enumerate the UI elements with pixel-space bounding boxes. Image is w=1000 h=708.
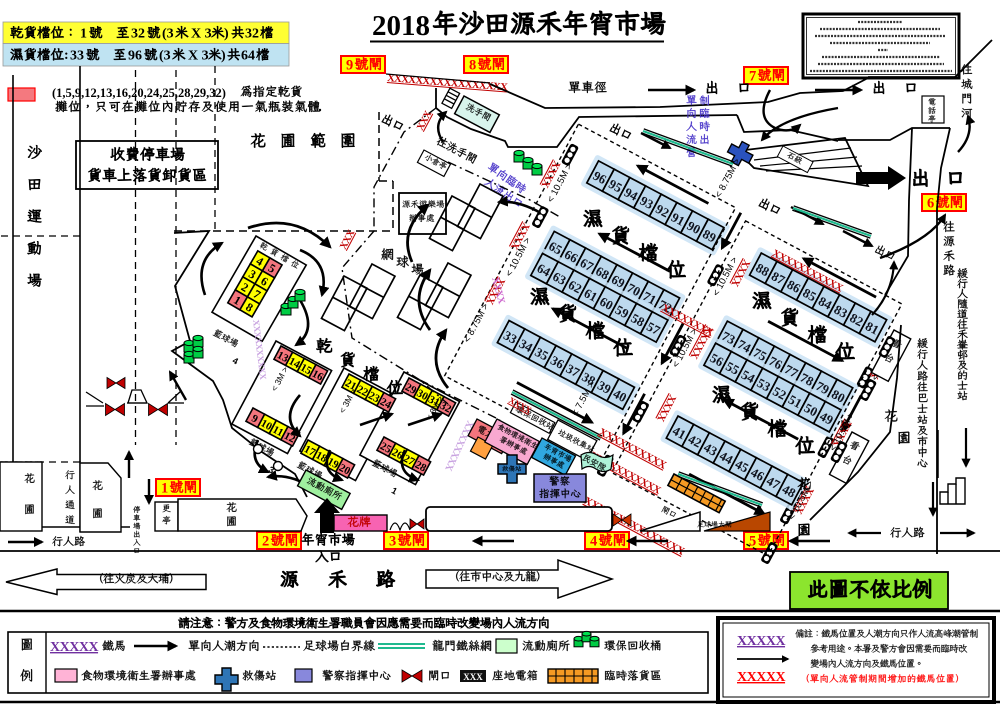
svg-text:): ) — [224, 27, 229, 42]
svg-text:6: 6 — [927, 196, 934, 212]
svg-text:(3: (3 — [162, 27, 174, 42]
svg-text:33: 33 — [70, 49, 84, 64]
svg-text:X 3: X 3 — [191, 27, 212, 42]
svg-text:X 3: X 3 — [188, 49, 209, 64]
svg-text:7: 7 — [749, 69, 756, 85]
svg-text:2018: 2018 — [372, 10, 430, 42]
svg-text:8: 8 — [469, 58, 476, 74]
svg-text:XXXXX: XXXXX — [737, 670, 785, 685]
svg-text:XXX: XXX — [463, 672, 483, 682]
svg-text:2: 2 — [262, 534, 269, 550]
svg-text:9: 9 — [346, 58, 353, 74]
svg-text:1: 1 — [80, 27, 87, 42]
svg-text:3: 3 — [389, 534, 396, 550]
svg-text:96: 96 — [128, 49, 142, 64]
svg-text:XXXXX: XXXXX — [50, 640, 98, 655]
svg-text:64: 64 — [241, 49, 255, 64]
svg-text:XXXXX: XXXXX — [737, 634, 785, 649]
svg-text:32: 32 — [131, 27, 145, 42]
svg-text:): ) — [221, 49, 226, 64]
svg-text:5: 5 — [749, 534, 756, 550]
svg-text:32: 32 — [245, 27, 259, 42]
svg-text:(1,5,9,12,13,16,20,24,25,28,29: (1,5,9,12,13,16,20,24,25,28,29,32) — [52, 86, 226, 100]
svg-text::: : — [64, 48, 69, 63]
svg-text:4: 4 — [590, 534, 597, 550]
svg-text:1: 1 — [161, 481, 168, 497]
svg-text:(3: (3 — [159, 49, 171, 64]
